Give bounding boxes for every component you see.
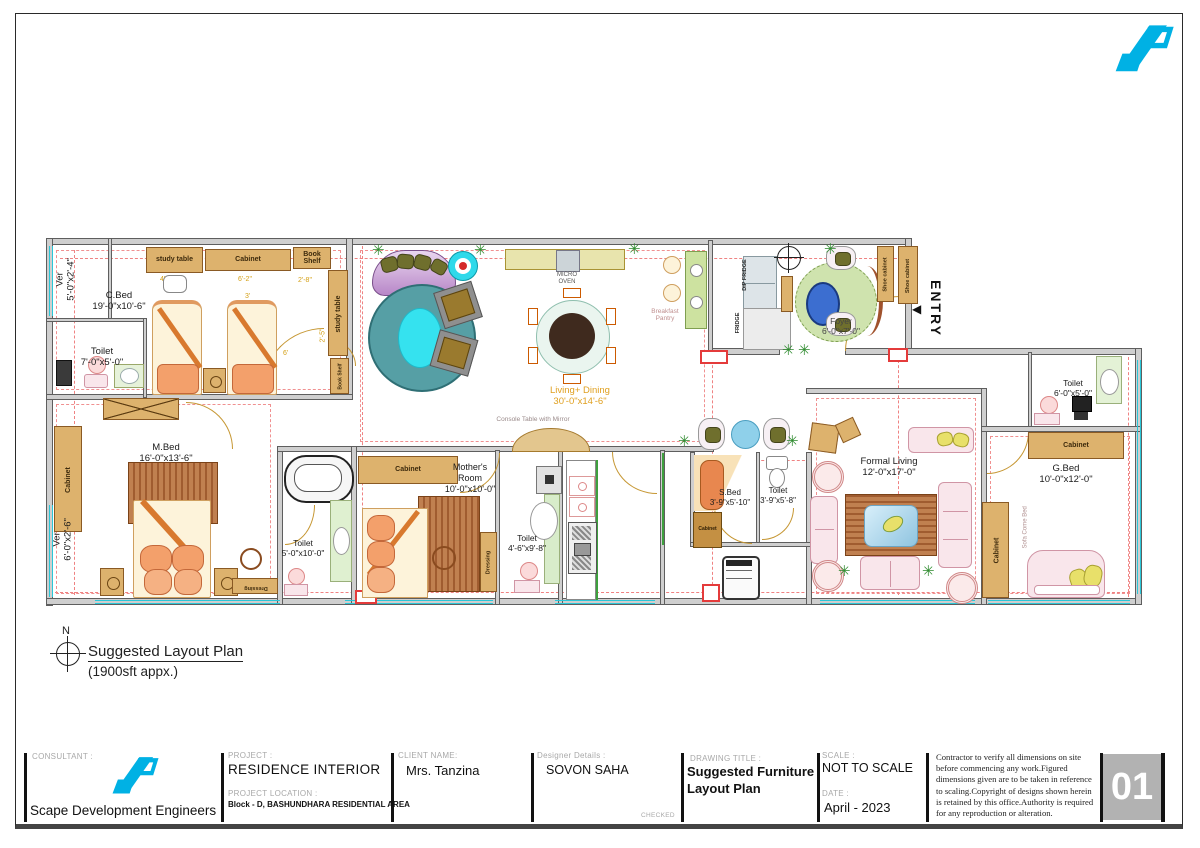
console-table-label: Console Table with Mirror [478, 416, 588, 423]
plant-icon: ✳ [922, 564, 935, 579]
book-shelf-label: Book Shelf [294, 251, 330, 266]
sink [569, 497, 595, 517]
nightstand [100, 568, 124, 596]
room-label-cbed: C.Bed19'-0"x10'-6" [83, 290, 155, 313]
tv-fixture [1072, 396, 1092, 412]
vanity-mirror [520, 562, 538, 580]
room-label-toilet4: Toilet3'-9"x5'-8" [752, 486, 804, 505]
room-label-foyer: Foyer6'-0"x7'-0" [808, 316, 874, 336]
dining-chair [606, 308, 616, 325]
sofa [908, 427, 974, 453]
book-shelf-label: Book Shelf [332, 359, 351, 395]
sink [569, 476, 595, 496]
room-label-living: Living+ Dining30'-0"x14'-6" [532, 385, 628, 408]
pantry-shelf [781, 276, 793, 312]
plan-subtitle: (1900sft appx.) [88, 664, 178, 679]
window [555, 600, 655, 604]
fridge-label: FRIDGE [735, 301, 741, 345]
tv-stand [1074, 412, 1088, 420]
notes-text: Contractor to verify all dimensions on s… [936, 752, 1098, 819]
dip-fridge-label: DIP FRIDGE [742, 248, 748, 302]
breakfast-pantry-label: Breakfast Pantry [644, 308, 686, 322]
mothers-bed [362, 508, 428, 598]
vanity [84, 374, 108, 388]
plant-icon: ✳ [678, 434, 691, 449]
sofa [938, 482, 972, 568]
round-side-table [946, 572, 978, 604]
cabinet: Cabinet [1028, 432, 1124, 459]
dressing-label: Dressing [233, 579, 279, 595]
designer-label: Designer Details : [537, 751, 606, 760]
micro-oven [556, 250, 580, 272]
single-bed [227, 300, 277, 395]
dip-fridge [743, 256, 777, 312]
wall [277, 446, 357, 452]
dining-chair [606, 347, 616, 364]
shoe-cabinet: Shoe cabinet [898, 246, 918, 304]
sofa [810, 496, 838, 564]
dim-label: 6'-2" [238, 276, 252, 283]
wall [806, 388, 986, 394]
stool [240, 548, 262, 570]
titleblock-divider [24, 753, 27, 822]
company-logo [1105, 24, 1183, 82]
washing-machine [722, 556, 760, 600]
project-name: RESIDENCE INTERIOR [228, 762, 380, 777]
drawing-sheet: study table Cabinet Book Shelf study tab… [0, 0, 1200, 848]
dining-chair [528, 347, 538, 364]
north-compass-icon [56, 642, 80, 666]
sofa-come-bed [1027, 550, 1105, 598]
round-table [731, 420, 760, 449]
dining-chair [528, 308, 538, 325]
shoe-cabinet: Shoe cabinet [877, 246, 894, 302]
toilet-bowl [769, 468, 785, 488]
dim-label: 2'-8" [298, 277, 312, 284]
shoe-cabinet-label: Shoe cabinet [899, 248, 919, 304]
stove [568, 522, 597, 574]
room-label-formal: Formal Living12'-0"x17'-0" [848, 456, 930, 479]
date-value: April - 2023 [824, 800, 890, 815]
plant-icon: ✳ [824, 242, 837, 257]
dim-label: 3' [245, 293, 250, 300]
plant-icon: ✳ [786, 434, 799, 449]
sheet-number: 01 [1103, 754, 1161, 820]
book-shelf: Book Shelf [293, 247, 331, 269]
consultant-name: Scape Development Engineers [30, 803, 216, 818]
dressing-vertical: Dressing [480, 532, 497, 592]
titleblock-divider [391, 753, 394, 822]
plant-icon: ✳ [838, 564, 851, 579]
micro-oven-label: MICRO OVEN [552, 272, 582, 285]
window [988, 600, 1130, 604]
drawing-title-label: DRAWING TITLE : [690, 754, 761, 763]
entry-arrow-icon: ◀ [912, 302, 921, 316]
dressing-table: Dressing [232, 578, 278, 594]
scale-value: NOT TO SCALE [822, 761, 913, 775]
dressing-label: Dressing [481, 535, 498, 591]
kitchen-wall-line [662, 453, 664, 545]
room-label-toilet1: Toilet7'-0"x5'-0" [68, 346, 136, 369]
wall [905, 348, 1142, 355]
room-label-mothers: Mother's Room10'-0"x10'-0" [442, 462, 498, 494]
lounge-chair [698, 418, 725, 450]
shoe-cabinet-label: Shoe cabinet [878, 248, 895, 302]
book-shelf-vertical: Book Shelf [330, 358, 349, 394]
vanity-mirror [288, 568, 305, 585]
cabinet-label: Cabinet [984, 506, 1011, 596]
cabinet: Cabinet [205, 249, 291, 271]
titleblock-divider [817, 753, 820, 822]
cabinet-label: Cabinet [694, 513, 721, 547]
cabinet-label: Cabinet [235, 256, 261, 263]
titleblock-divider [531, 753, 534, 822]
sofa-come-bed-label: Sofa Come Bed [1023, 497, 1030, 557]
study-chair [163, 275, 187, 293]
titleblock-divider [1161, 753, 1165, 822]
dining-chair [563, 374, 581, 384]
dim-label: 6' [283, 350, 288, 357]
vanity [284, 584, 308, 596]
study-table-label: study table [156, 256, 193, 263]
checked-label: CHECKED [641, 812, 675, 819]
wall [708, 240, 713, 355]
window [49, 246, 53, 316]
master-bed [133, 500, 211, 598]
room-label-gbed: G.Bed10'-0"x12'-0" [1030, 463, 1102, 486]
plant-icon: ✳ [474, 243, 487, 258]
wall [46, 318, 146, 322]
room-label-sbed: S.Bed3'-9"x5'-10" [704, 488, 756, 507]
wardrobe [103, 398, 179, 420]
vanity-mirror [1040, 396, 1058, 414]
dim-label: 4' [160, 276, 165, 283]
north-label: N [62, 625, 70, 637]
column [700, 350, 728, 364]
ceiling-fixture [777, 246, 801, 270]
round-side-table [812, 461, 844, 493]
window [1137, 360, 1141, 594]
drawing-title: Suggested Furniture Layout Plan [687, 764, 815, 798]
dining-table [536, 300, 610, 374]
dim-label: 2'-5" [319, 329, 326, 343]
room-label-toilet2: Toilet5'-0"x10'-0" [272, 538, 334, 558]
cabinet-vertical: Cabinet [982, 502, 1009, 598]
client-label: CLIENT NAME: [398, 751, 457, 760]
wall [1028, 352, 1032, 430]
scale-label: SCALE : [822, 751, 855, 760]
titleblock-divider [681, 753, 684, 822]
designer-name: SOVON SAHA [546, 763, 629, 777]
study-table-vertical: study table [328, 270, 348, 356]
cabinet-small: Cabinet [693, 512, 722, 548]
study-table-label: study table [329, 274, 349, 354]
nightstand [203, 368, 226, 393]
single-bed [152, 300, 202, 395]
consultant-label: CONSULTANT : [32, 752, 93, 761]
plant-icon: ✳ [628, 242, 641, 257]
project-label: PROJECT : [228, 751, 272, 760]
vanity [514, 580, 540, 593]
cabinet-label: Cabinet [1029, 433, 1123, 458]
client-name: Mrs. Tanzina [406, 763, 479, 778]
room-label-ver1: Ver5'-0"x2'-4" [55, 249, 78, 309]
location-value: Block - D, BASHUNDHARA RESIDENTIAL AREA [228, 800, 410, 809]
wood-rug [845, 494, 937, 556]
location-label: PROJECT LOCATION : [228, 789, 318, 798]
stool [663, 256, 681, 274]
stool [432, 546, 456, 570]
company-logo-small [100, 756, 170, 802]
shower-panel [536, 466, 562, 494]
vanity [1034, 413, 1060, 425]
room-label-toilet3: Toilet4'-6"x9'-8" [496, 533, 558, 553]
room-label-toilet5: Toilet6'-0"x5'-0" [1042, 378, 1104, 398]
bathtub [284, 455, 354, 503]
date-label: DATE : [822, 789, 849, 798]
room-label-ver2: Ver6'-0"x2'-6" [52, 509, 75, 569]
loveseat [860, 556, 920, 590]
window [95, 600, 280, 604]
entry-label: ENTRY [928, 280, 944, 337]
plant-icon: ✳ [782, 343, 795, 358]
plan-title: Suggested Layout Plan [88, 643, 243, 662]
column [702, 584, 720, 602]
plant-icon: ✳ [798, 343, 811, 358]
room-label-mbed: M.Bed16'-0"x13'-6" [130, 442, 202, 465]
titleblock-divider [221, 753, 224, 822]
titleblock-divider [926, 753, 929, 822]
pantry-counter [685, 251, 707, 329]
stool [663, 284, 681, 302]
study-table: study table [146, 247, 203, 273]
plant-icon: ✳ [372, 243, 385, 258]
dining-chair [563, 288, 581, 298]
